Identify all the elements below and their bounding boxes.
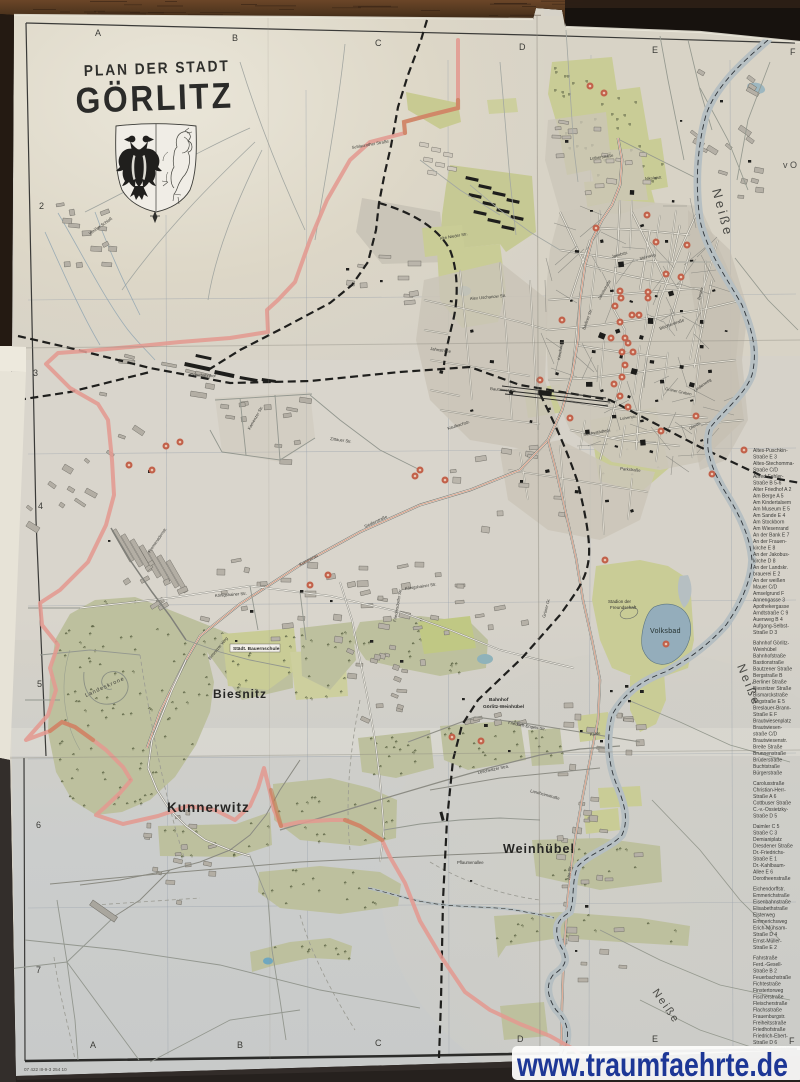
svg-text:Pflaumenallee: Pflaumenallee	[457, 860, 484, 865]
svg-text:Breslauer-Brann-: Breslauer-Brann-	[753, 706, 791, 712]
svg-text:Bahnhof Görlitz-: Bahnhof Görlitz-	[753, 641, 789, 647]
svg-text:Cottbuser Straße: Cottbuser Straße	[753, 801, 791, 807]
svg-text:Aufgang-Selbst-: Aufgang-Selbst-	[753, 624, 789, 630]
svg-text:Annengasse 3: Annengasse 3	[753, 598, 785, 604]
svg-text:Carolusstraße: Carolusstraße	[753, 781, 785, 787]
svg-text:Straße E 2: Straße E 2	[753, 945, 777, 951]
svg-text:Fischerstraße: Fischerstraße	[753, 995, 784, 1001]
svg-text:Brautwiesen-: Brautwiesen-	[753, 725, 783, 731]
svg-text:Straße B 5-6: Straße B 5-6	[753, 481, 782, 487]
svg-text:C.-v.-Ossietzky-: C.-v.-Ossietzky-	[753, 807, 789, 813]
svg-text:D: D	[519, 42, 526, 52]
svg-text:Feuerbachstraße: Feuerbachstraße	[753, 975, 791, 981]
svg-text:B: B	[237, 1040, 243, 1050]
svg-text:Alfred-Fehler-: Alfred-Fehler-	[753, 474, 784, 480]
svg-text:Weinhübel: Weinhübel	[753, 647, 777, 653]
svg-text:An der weißen: An der weißen	[753, 578, 785, 584]
svg-text:Dresdener Straße: Dresdener Straße	[753, 844, 793, 850]
svg-text:Görlitz-Weinhübel: Görlitz-Weinhübel	[483, 704, 524, 710]
svg-text:F: F	[789, 1036, 795, 1046]
svg-text:Am Museum E 5: Am Museum E 5	[753, 507, 790, 513]
svg-text:Friedrich-Ebert-: Friedrich-Ebert-	[753, 1034, 788, 1040]
svg-text:Bahnhofstraße: Bahnhofstraße	[753, 654, 786, 660]
svg-text:F: F	[790, 47, 796, 57]
svg-text:Bautzener Straße: Bautzener Straße	[753, 667, 792, 673]
svg-text:A: A	[95, 28, 101, 38]
svg-text:Fleischerstraße: Fleischerstraße	[753, 1001, 788, 1007]
svg-text:Amselgrund F: Amselgrund F	[753, 591, 784, 597]
svg-text:kirche D 8: kirche D 8	[753, 559, 776, 565]
svg-text:Emmerichstraße: Emmerichstraße	[753, 893, 790, 899]
svg-text:Am Kindertalsem: Am Kindertalsem	[753, 500, 791, 506]
svg-text:Altes-Puschkin-: Altes-Puschkin-	[753, 448, 788, 454]
svg-text:Stadion der: Stadion der	[608, 599, 632, 604]
svg-text:Ernst-Müller-: Ernst-Müller-	[753, 939, 782, 945]
svg-text:kirche E 8: kirche E 8	[753, 546, 775, 552]
svg-text:An der Frauen-: An der Frauen-	[753, 539, 787, 545]
svg-text:An der Landskr.: An der Landskr.	[753, 565, 788, 571]
svg-text:Bahnhof: Bahnhof	[489, 697, 509, 703]
svg-text:Bastionstraße: Bastionstraße	[753, 660, 784, 666]
svg-text:Breite Straße: Breite Straße	[753, 745, 783, 751]
svg-text:Elsterweg: Elsterweg	[753, 913, 775, 919]
svg-text:Fichtestraße: Fichtestraße	[753, 982, 781, 988]
svg-text:Biesnitzer Straße: Biesnitzer Straße	[753, 686, 792, 692]
svg-text:4: 4	[38, 501, 43, 511]
svg-text:An der Bank E 7: An der Bank E 7	[753, 533, 790, 539]
svg-text:B: B	[232, 33, 238, 43]
svg-text:Auenweg B 4: Auenweg B 4	[753, 617, 783, 623]
svg-text:Freundschaft: Freundschaft	[610, 605, 637, 610]
svg-text:Brunnenstraße: Brunnenstraße	[753, 751, 786, 757]
svg-text:Straße E 1: Straße E 1	[753, 857, 777, 863]
svg-text:Dr.-Kahlbaum-: Dr.-Kahlbaum-	[753, 863, 786, 869]
svg-text:Dorotheenstraße: Dorotheenstraße	[753, 876, 791, 882]
svg-text:Frauenburgstr.: Frauenburgstr.	[753, 1014, 786, 1020]
svg-text:Friedhofstraße: Friedhofstraße	[753, 1027, 786, 1033]
svg-text:www.traumfaehrte.de: www.traumfaehrte.de	[516, 1046, 788, 1082]
svg-text:Eichendorffstr.: Eichendorffstr.	[753, 887, 785, 893]
svg-text:Arndtstraße C 9: Arndtstraße C 9	[753, 611, 789, 617]
svg-text:brauerei E 2: brauerei E 2	[753, 572, 780, 578]
svg-text:Daimler C 5: Daimler C 5	[753, 824, 780, 830]
svg-text:Straße E 3: Straße E 3	[753, 455, 777, 461]
svg-text:Städt. Bauernschule: Städt. Bauernschule	[233, 646, 280, 652]
svg-text:D: D	[517, 1034, 524, 1044]
svg-text:Eisenbahnstraße: Eisenbahnstraße	[753, 900, 791, 906]
svg-text:Emmerichsweg: Emmerichsweg	[753, 919, 787, 925]
svg-text:Kunnerwitz: Kunnerwitz	[167, 800, 250, 815]
svg-text:Volksbad: Volksbad	[650, 628, 681, 635]
svg-text:Bismarckstraße: Bismarckstraße	[753, 693, 788, 699]
svg-text:Apothekergasse: Apothekergasse	[753, 604, 789, 610]
svg-text:C: C	[375, 38, 382, 48]
svg-text:C: C	[375, 1038, 382, 1048]
svg-text:straße C/D: straße C/D	[753, 732, 778, 738]
svg-text:Brautwiesenplatz: Brautwiesenplatz	[753, 719, 792, 725]
svg-text:Erich-Mühsam-: Erich-Mühsam-	[753, 926, 787, 932]
svg-text:07 422 III-9-3 254 10: 07 422 III-9-3 254 10	[24, 1067, 67, 1072]
svg-text:A: A	[90, 1040, 96, 1050]
svg-text:Demianiplatz: Demianiplatz	[753, 837, 782, 843]
svg-text:Berliner Straße: Berliner Straße	[753, 680, 787, 686]
svg-text:Am Stockborn: Am Stockborn	[753, 520, 785, 526]
svg-text:An der Jakobus-: An der Jakobus-	[753, 552, 790, 558]
svg-text:Biesnitz: Biesnitz	[213, 687, 267, 701]
svg-text:Brüderstraße: Brüderstraße	[753, 758, 782, 764]
svg-text:6: 6	[36, 820, 41, 830]
svg-text:7: 7	[36, 965, 41, 975]
svg-text:Straße C/D: Straße C/D	[753, 468, 778, 474]
svg-text:Bürgerstraße: Bürgerstraße	[753, 771, 782, 777]
svg-text:Am Wiesenrand: Am Wiesenrand	[753, 526, 789, 532]
svg-text:Am Sande E 4: Am Sande E 4	[753, 513, 785, 519]
svg-text:v O: v O	[783, 160, 797, 170]
svg-text:Brautwiesenstr.: Brautwiesenstr.	[753, 738, 787, 744]
svg-text:Flachsstraße: Flachsstraße	[753, 1008, 782, 1014]
svg-text:Altes-Stechomma-: Altes-Stechomma-	[753, 461, 794, 467]
svg-text:Bogstraße E 5: Bogstraße E 5	[753, 699, 785, 705]
svg-text:Straße D 5: Straße D 5	[753, 814, 777, 820]
svg-text:E: E	[652, 45, 658, 55]
svg-text:5: 5	[37, 679, 42, 689]
svg-text:GÖRLITZ: GÖRLITZ	[75, 75, 234, 121]
svg-text:Finstertorweg: Finstertorweg	[753, 988, 784, 994]
svg-text:2: 2	[39, 201, 44, 211]
svg-text:Straße B 2: Straße B 2	[753, 969, 777, 975]
svg-text:Straße A 6: Straße A 6	[753, 794, 777, 800]
svg-text:Dr.-Friedrichs-: Dr.-Friedrichs-	[753, 850, 785, 856]
svg-text:Straße E F: Straße E F	[753, 712, 777, 718]
svg-text:Straße D 4: Straße D 4	[753, 932, 777, 938]
svg-text:Fahrstraße: Fahrstraße	[753, 956, 778, 962]
svg-text:Christian-Herr-: Christian-Herr-	[753, 788, 786, 794]
svg-text:Mauer C/D: Mauer C/D	[753, 585, 778, 591]
svg-text:Allee E 6: Allee E 6	[753, 870, 773, 876]
svg-text:Am Berge A 5: Am Berge A 5	[753, 494, 784, 500]
svg-text:Freiheitsstraße: Freiheitsstraße	[753, 1021, 787, 1027]
svg-text:Elisabethstraße: Elisabethstraße	[753, 906, 788, 912]
svg-text:E: E	[652, 1034, 658, 1044]
svg-text:3: 3	[33, 368, 38, 378]
svg-text:Straße C 3: Straße C 3	[753, 831, 777, 837]
svg-text:Buchtstraße: Buchtstraße	[753, 764, 780, 770]
svg-text:Ferd.-Gesell-: Ferd.-Gesell-	[753, 962, 783, 968]
svg-text:Straße D 3: Straße D 3	[753, 630, 777, 636]
svg-text:Alter Friedhof A 2: Alter Friedhof A 2	[753, 487, 792, 493]
svg-text:Bergstraße B: Bergstraße B	[753, 673, 783, 679]
